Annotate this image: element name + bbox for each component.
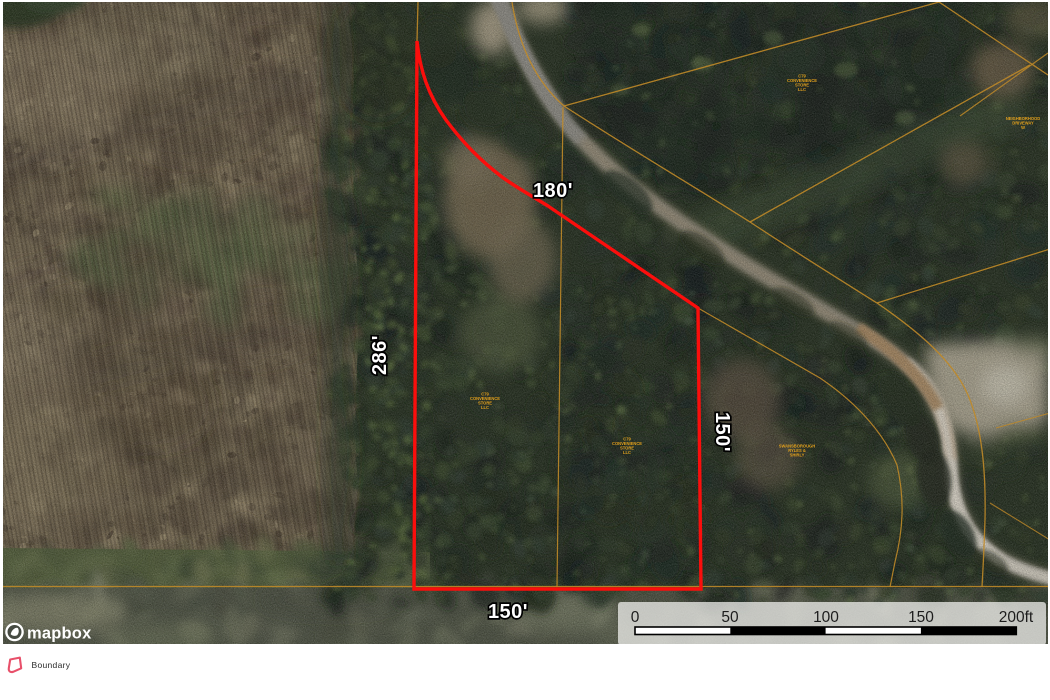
svg-text:LLC: LLC — [623, 450, 631, 455]
svg-text:LLC: LLC — [798, 87, 806, 92]
svg-text:200ft: 200ft — [999, 609, 1034, 626]
svg-text:W: W — [1021, 125, 1025, 130]
svg-text:mapbox: mapbox — [27, 625, 92, 643]
svg-text:50: 50 — [721, 609, 739, 626]
svg-text:100: 100 — [813, 609, 839, 626]
svg-text:LLC: LLC — [481, 405, 489, 410]
svg-text:150': 150' — [711, 412, 733, 452]
svg-text:286': 286' — [369, 335, 391, 375]
svg-text:0: 0 — [631, 609, 640, 626]
svg-text:150: 150 — [908, 609, 934, 626]
svg-text:SHIRLY: SHIRLY — [790, 453, 805, 458]
svg-text:180': 180' — [533, 180, 573, 202]
svg-text:Boundary: Boundary — [32, 660, 71, 670]
svg-text:150': 150' — [488, 601, 528, 623]
